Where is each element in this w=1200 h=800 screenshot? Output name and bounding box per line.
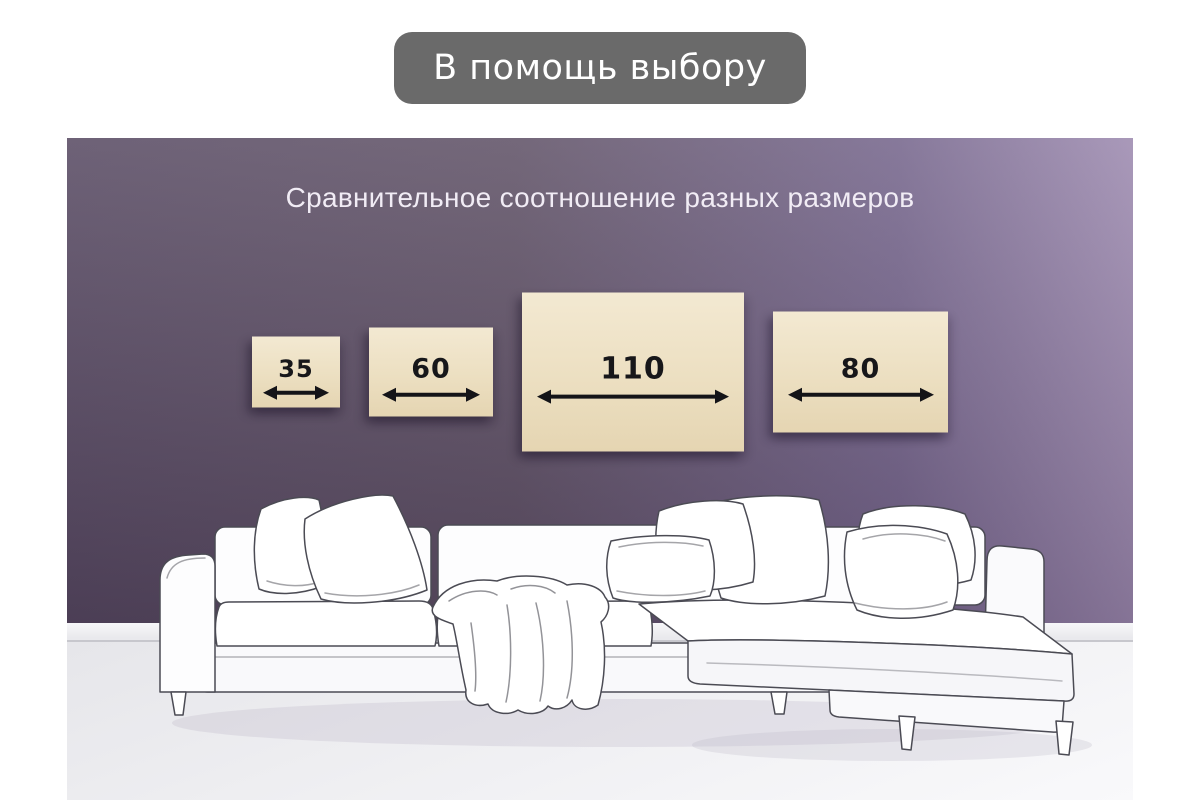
width-arrow-icon [786, 385, 936, 403]
size-value: 110 [600, 354, 666, 384]
scene-title: Сравнительное соотношение разных размеро… [67, 182, 1133, 214]
size-card-110: 110 [522, 293, 744, 452]
size-comparison-scene: Сравнительное соотношение разных размеро… [67, 138, 1133, 800]
sofa-illustration [147, 483, 1097, 773]
width-arrow-icon [261, 383, 331, 401]
width-arrow-icon [535, 387, 731, 405]
size-cards-row: 35 60 110 [67, 293, 1133, 452]
size-card-35: 35 [252, 337, 340, 408]
section-heading-chip: В помощь выбору [394, 32, 806, 104]
size-value: 60 [411, 355, 451, 382]
size-value: 35 [278, 356, 313, 380]
size-card-60: 60 [369, 328, 493, 417]
infographic-page: В помощь выбору Сравнительное соотношени… [0, 0, 1200, 800]
size-value: 80 [841, 355, 881, 382]
width-arrow-icon [380, 385, 482, 403]
section-heading-label: В помощь выбору [433, 48, 767, 88]
size-card-80: 80 [773, 312, 948, 433]
